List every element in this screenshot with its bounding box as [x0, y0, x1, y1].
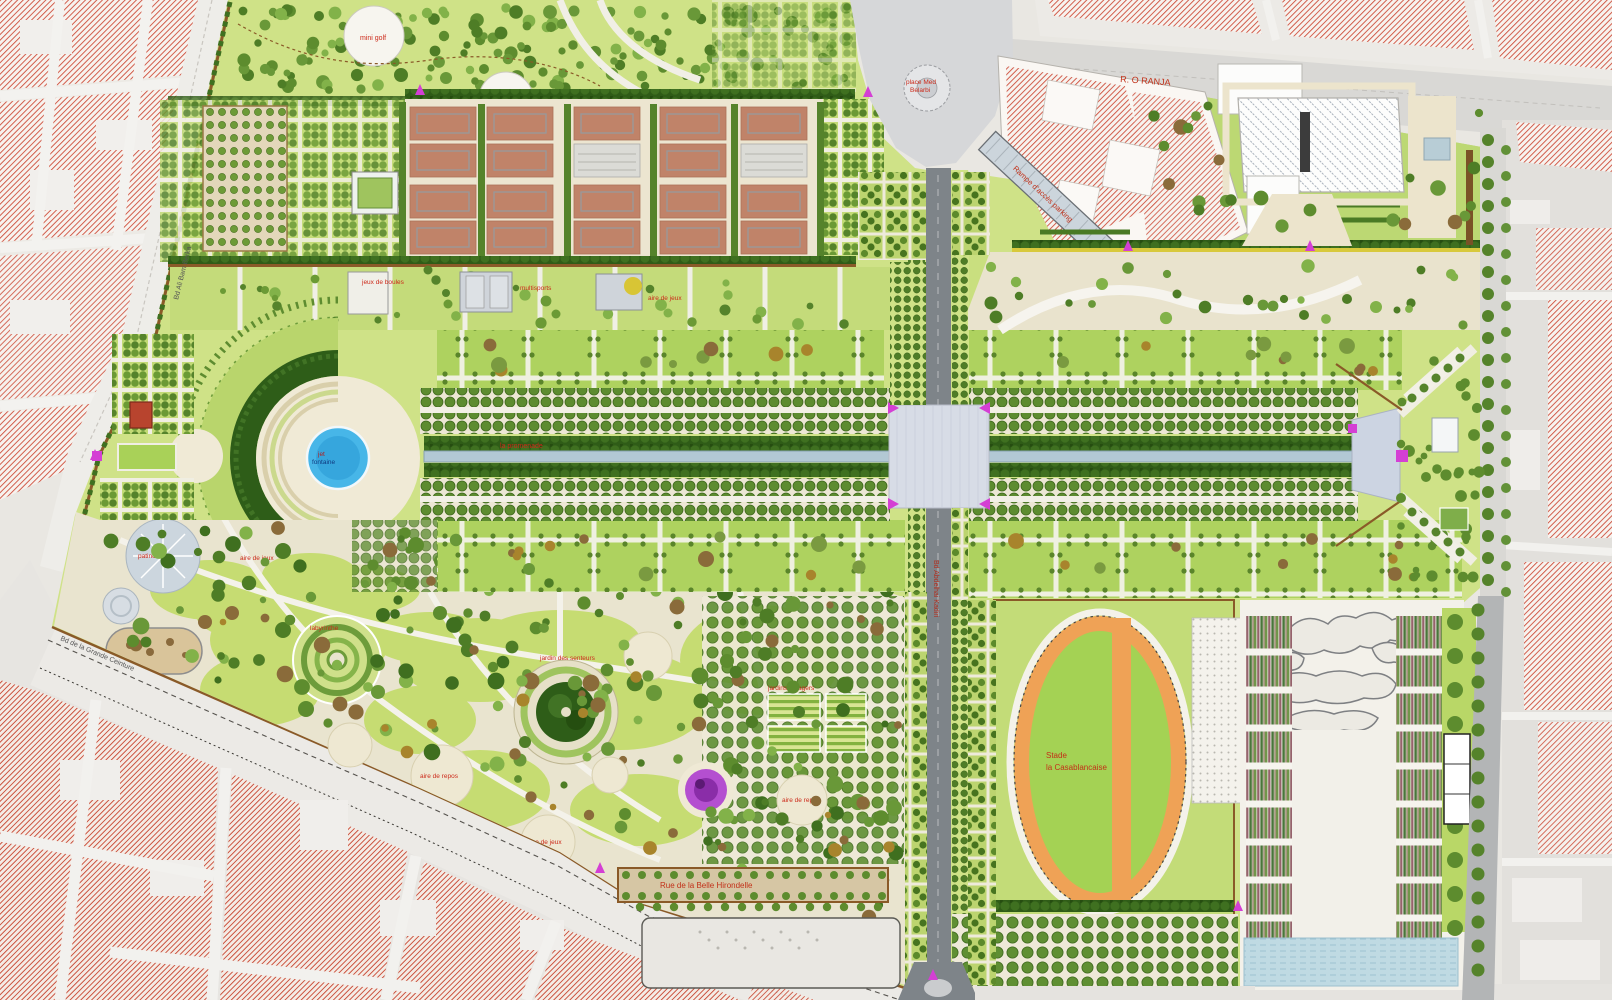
svg-text:jardin des senteurs: jardin des senteurs [539, 655, 596, 662]
svg-text:place Med: place Med [906, 79, 936, 86]
svg-text:aire de jeux: aire de jeux [648, 295, 682, 302]
svg-text:la Casablancaise: la Casablancaise [1046, 763, 1107, 772]
svg-text:aire de repos: aire de repos [420, 773, 459, 780]
svg-text:multisports: multisports [520, 285, 552, 292]
svg-text:labyrinthe: labyrinthe [310, 625, 339, 632]
svg-text:Bd Abdelhai Kadiri: Bd Abdelhai Kadiri [932, 560, 939, 618]
svg-text:fontaine: fontaine [312, 459, 336, 466]
svg-text:la promenade: la promenade [500, 443, 543, 450]
svg-text:Stade: Stade [1046, 751, 1067, 760]
svg-text:mini golf: mini golf [360, 35, 386, 42]
svg-text:jeux de boules: jeux de boules [361, 279, 405, 286]
svg-text:Rue de la Belle Hirondelle: Rue de la Belle Hirondelle [660, 881, 753, 890]
svg-text:Belarbi: Belarbi [910, 87, 930, 94]
svg-text:jet: jet [317, 451, 325, 458]
